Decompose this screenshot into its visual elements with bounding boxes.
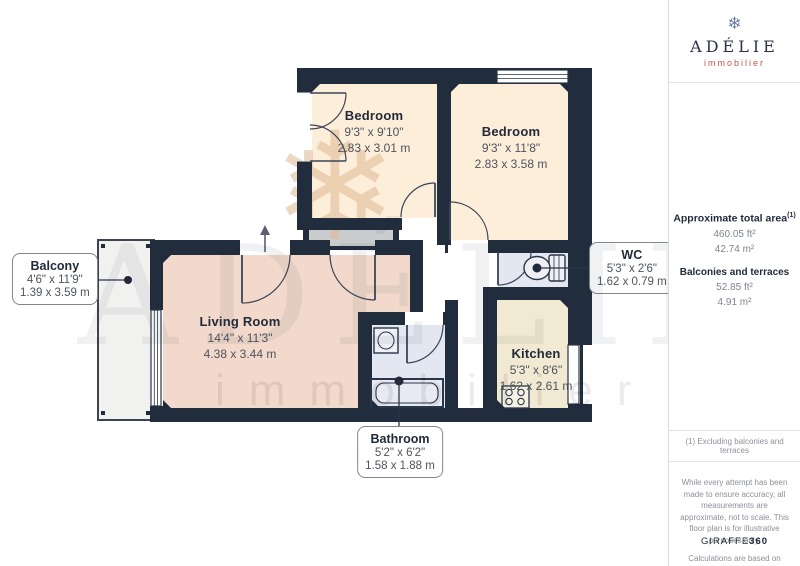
- living-room-label: Living Room 14'4" x 11'3" 4.38 x 3.44 m: [200, 314, 281, 361]
- wall-segment: [297, 68, 592, 84]
- balcony-callout: Balcony 4'6" x 11'9" 1.39 x 3.59 m: [12, 253, 98, 305]
- kitchen-label: Kitchen 5'3" x 8'6" 1.62 x 2.61 m: [500, 346, 573, 393]
- wall-segment: [150, 408, 592, 422]
- area-summary: Approximate total area(1) 460.05 ft² 42.…: [669, 212, 800, 308]
- brand-name: ADÉLIE: [669, 37, 800, 56]
- snowflake-icon: ❄: [669, 14, 800, 34]
- wall-segment: [150, 240, 240, 255]
- wall-segment: [445, 240, 448, 253]
- wall-segment: [483, 287, 592, 300]
- entrance-arrow: [260, 225, 270, 252]
- legal-text: While every attempt has been made to ens…: [669, 471, 800, 566]
- wall-segment: [297, 84, 312, 92]
- balconies-m: 4.91 m²: [669, 297, 800, 308]
- wall-segment: [445, 300, 458, 408]
- bedroom-1-label: Bedroom 9'3" x 9'10" 2.83 x 3.01 m: [338, 108, 411, 155]
- balconies-label: Balconies and terraces: [669, 267, 800, 278]
- footnote: (1) Excluding balconies and terraces: [669, 430, 800, 462]
- total-area-m: 42.74 m²: [669, 244, 800, 255]
- balconies-ft: 52.85 ft²: [669, 282, 800, 293]
- wall-segment: [150, 255, 163, 310]
- bathroom-floor: [372, 325, 445, 408]
- balcony-area: [97, 239, 155, 421]
- wall-segment: [483, 300, 497, 408]
- total-area-label: Approximate total area(1): [669, 212, 800, 225]
- standard-text: Calculations are based on RICS IPMS 3C s…: [679, 553, 790, 566]
- wall-segment: [297, 162, 312, 218]
- wall-segment: [297, 218, 402, 230]
- brand-tagline: immobilier: [669, 58, 800, 68]
- wall-segment: [568, 300, 592, 345]
- wall-segment: [358, 312, 405, 325]
- wc-callout: WC 5'3" x 2'6" 1.62 x 0.79 m: [589, 242, 675, 294]
- info-sidebar: ❄ ADÉLIE immobilier Approximate total ar…: [668, 0, 800, 566]
- bedroom-2-label: Bedroom 9'3" x 11'8" 2.83 x 3.58 m: [475, 124, 548, 171]
- footnote-marker: (1): [787, 212, 796, 219]
- wall-segment: [437, 218, 445, 230]
- total-area-ft: 460.05 ft²: [669, 229, 800, 240]
- wall-segment: [410, 240, 423, 312]
- giraffe360-logo: GIRAFFE360: [669, 536, 800, 547]
- wall-segment: [358, 325, 372, 408]
- floorplan-page: ❄: [0, 0, 800, 566]
- wall-segment: [488, 240, 592, 253]
- brand-logo: ❄ ADÉLIE immobilier: [669, 0, 800, 83]
- wall-segment: [290, 240, 330, 255]
- bathroom-callout: Bathroom 5'2" x 6'2" 1.58 x 1.88 m: [357, 426, 443, 478]
- living-room-floor-upper: [163, 255, 410, 312]
- wc-floor: [497, 253, 568, 287]
